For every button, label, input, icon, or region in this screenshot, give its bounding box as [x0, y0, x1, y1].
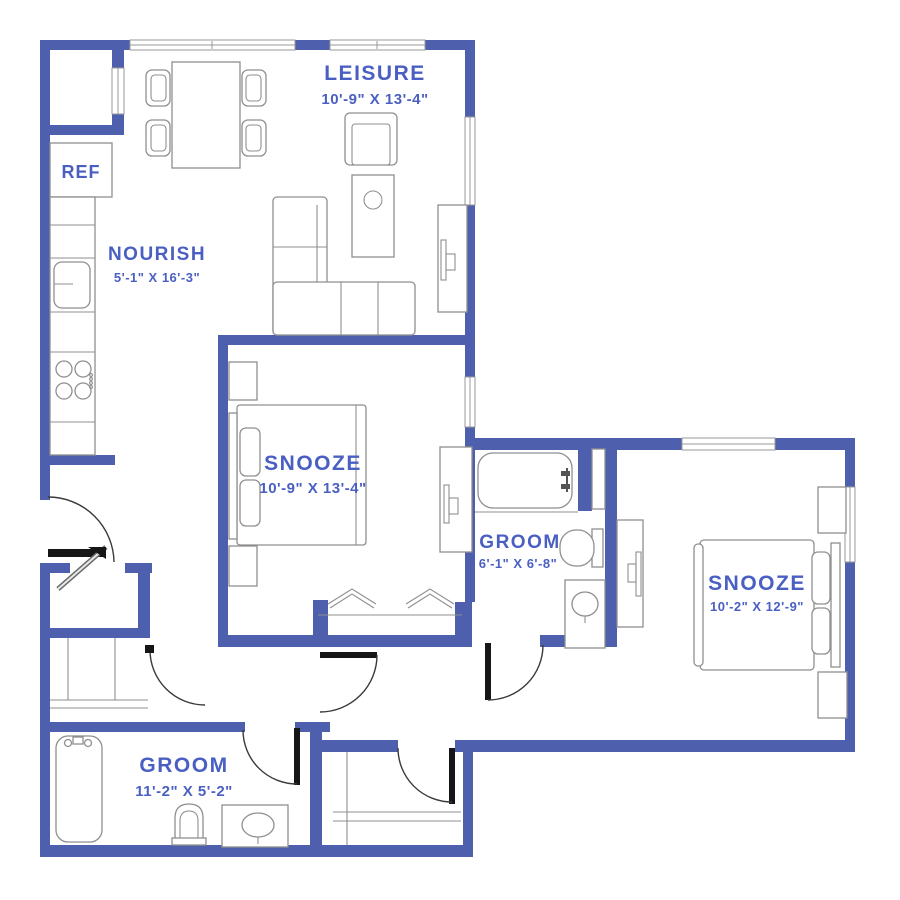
tv-console-bedroom2: [617, 520, 643, 627]
bed: [229, 405, 366, 545]
laundry-closet-door: [398, 748, 455, 804]
room-labels: LEISURE 10'-9" X 13'-4" NOURISH 5'-1" X …: [62, 62, 806, 800]
entry-door: [48, 497, 114, 589]
room-dims-groom1: 6'-1" X 6'-8": [479, 556, 557, 571]
room-label-groom1: GROOM: [479, 532, 560, 553]
window-top-left: [130, 40, 295, 50]
nightstand: [229, 362, 257, 400]
bathtub: [56, 736, 102, 842]
vestibule-door: [145, 645, 205, 705]
room-dims-groom2: 11'-2" X 5'-2": [135, 783, 233, 800]
armchair: [345, 113, 397, 165]
bathtub: [478, 453, 572, 508]
tv-console-leisure: [438, 205, 467, 312]
room-label-leisure: LEISURE: [324, 62, 426, 85]
room-dims-leisure: 10'-9" X 13'-4": [321, 91, 428, 108]
floor-plan-svg: LEISURE 10'-9" X 13'-4" NOURISH 5'-1" X …: [0, 0, 900, 900]
kitchen-counter: [50, 197, 95, 455]
sink-vanity: [222, 805, 288, 847]
nightstand: [818, 672, 847, 718]
window-top-right: [330, 40, 425, 50]
room-label-snooze2: SNOOZE: [708, 572, 806, 595]
room-label-nourish: NOURISH: [108, 244, 206, 265]
room-label-groom2: GROOM: [139, 754, 228, 777]
nightstand: [818, 487, 846, 533]
refrigerator-label: REF: [62, 162, 101, 182]
dresser-tv: [440, 447, 472, 552]
kitchen-sink: [54, 262, 90, 308]
room-dims-snooze1: 10'-9" X 13'-4": [259, 480, 366, 497]
toilet: [560, 529, 603, 567]
pantry-door: [112, 68, 124, 114]
toilet: [172, 804, 206, 845]
window-leisure-right: [465, 117, 475, 205]
living-room: [273, 113, 467, 335]
coffee-table: [352, 175, 394, 257]
nightstand: [229, 546, 257, 586]
window-snooze1-right: [465, 377, 475, 427]
room-label-snooze1: SNOOZE: [264, 452, 362, 475]
bifold-closet-doors: [318, 589, 462, 615]
room-dims-nourish: 5'-1" X 16'-3": [114, 270, 200, 285]
snooze1-door: [320, 652, 377, 712]
dining-table: [172, 62, 240, 168]
bathroom2-door: [243, 728, 300, 785]
window-snooze2-top: [682, 438, 775, 450]
hall-right-door: [485, 643, 543, 700]
washer-dryer-closet: [50, 638, 148, 708]
sink-vanity: [565, 580, 605, 648]
laundry-closet: [333, 752, 461, 845]
linen-closet: [592, 449, 605, 509]
room-dims-snooze2: 10'-2" X 12'-9": [710, 599, 804, 614]
floor-plan: LEISURE 10'-9" X 13'-4" NOURISH 5'-1" X …: [0, 0, 900, 900]
